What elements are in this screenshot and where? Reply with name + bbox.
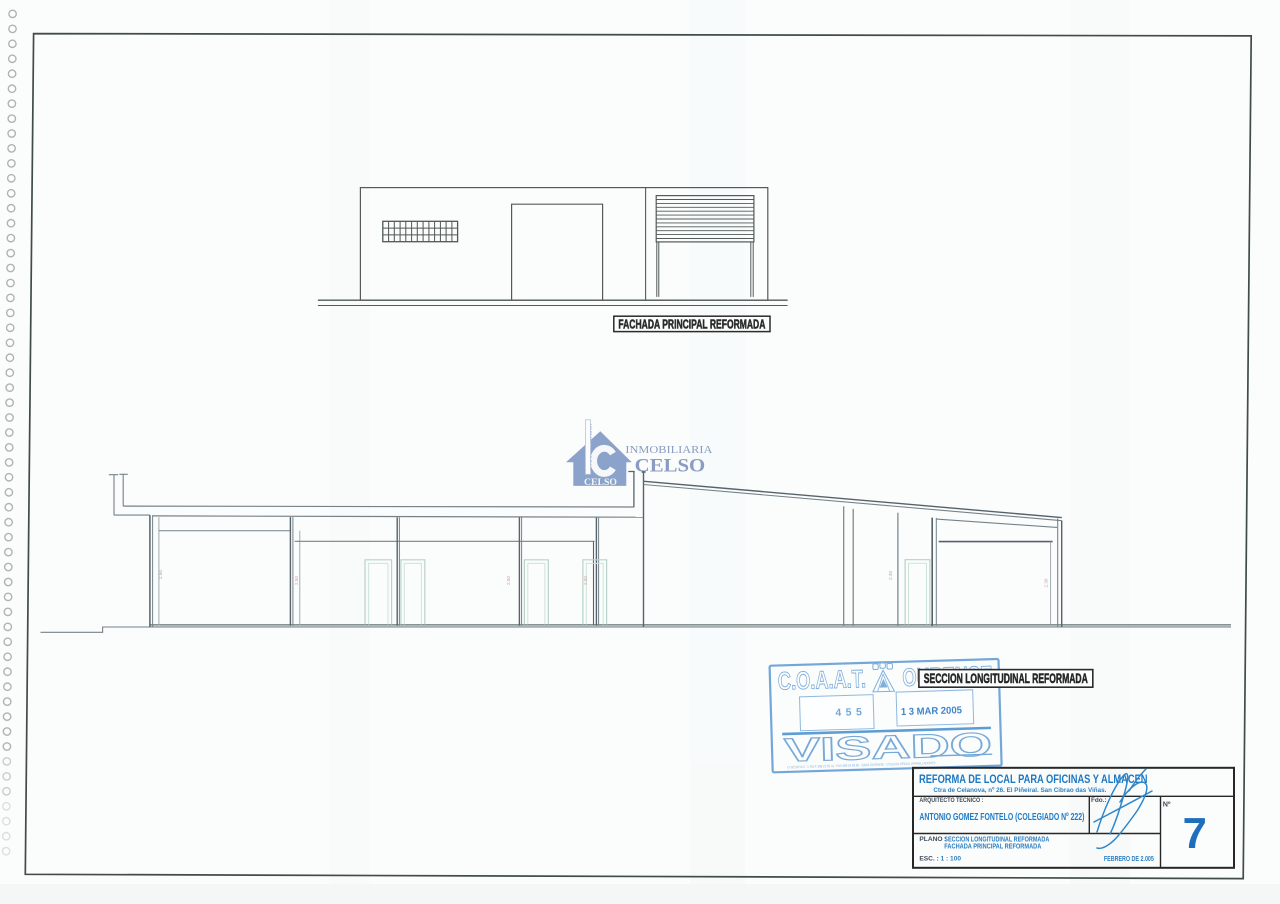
svg-text:FACHADA PRINCIPAL REFORMADA: FACHADA PRINCIPAL REFORMADA bbox=[618, 317, 765, 331]
svg-text:2.50: 2.50 bbox=[583, 576, 588, 585]
svg-text:FEBRERO DE 2.005: FEBRERO DE 2.005 bbox=[1104, 856, 1154, 863]
svg-text:ARQUITECTO TECNICO :: ARQUITECTO TECNICO : bbox=[919, 797, 983, 804]
svg-text:REFORMA DE LOCAL PARA OFICINAS: REFORMA DE LOCAL PARA OFICINAS Y ALMACEN bbox=[919, 772, 1148, 786]
svg-text:455: 455 bbox=[835, 706, 866, 719]
svg-text:INMOBILIARIA: INMOBILIARIA bbox=[625, 444, 712, 456]
svg-text:7: 7 bbox=[1183, 810, 1207, 858]
svg-text:2.50: 2.50 bbox=[294, 576, 299, 585]
svg-text:PLANO :: PLANO : bbox=[919, 836, 946, 843]
svg-text:2.30: 2.30 bbox=[1043, 578, 1048, 587]
svg-text:SECCION LONGITUDINAL REFORMADA: SECCION LONGITUDINAL REFORMADA bbox=[924, 671, 1088, 686]
svg-text:Ctra de Celanova, nº 26. El Pi: Ctra de Celanova, nº 26. El Piñeiral. Sa… bbox=[933, 787, 1106, 794]
svg-text:ANTONIO GOMEZ FONTELO (COLEGIA: ANTONIO GOMEZ FONTELO (COLEGIADO Nº 222) bbox=[919, 812, 1084, 823]
svg-text:1 : 100: 1 : 100 bbox=[941, 855, 962, 862]
svg-text:Fdo.:: Fdo.: bbox=[1091, 797, 1107, 804]
svg-text:ESC. :: ESC. : bbox=[919, 855, 938, 862]
svg-text:FACHADA PRINCIPAL REFORMADA: FACHADA PRINCIPAL REFORMADA bbox=[944, 842, 1041, 851]
svg-text:CELSO: CELSO bbox=[635, 455, 706, 476]
svg-text:2.48: 2.48 bbox=[888, 571, 893, 580]
svg-text:2.50: 2.50 bbox=[158, 570, 163, 579]
svg-text:1 3 MAR 2005: 1 3 MAR 2005 bbox=[901, 705, 963, 718]
svg-text:Nº: Nº bbox=[1163, 799, 1171, 808]
svg-text:CELSO: CELSO bbox=[584, 477, 617, 487]
svg-text:2.50: 2.50 bbox=[506, 576, 511, 585]
svg-text:C.O.A.A.T.: C.O.A.A.T. bbox=[778, 665, 867, 696]
svg-text:INMOBILIARIA: INMOBILIARIA bbox=[589, 424, 593, 472]
